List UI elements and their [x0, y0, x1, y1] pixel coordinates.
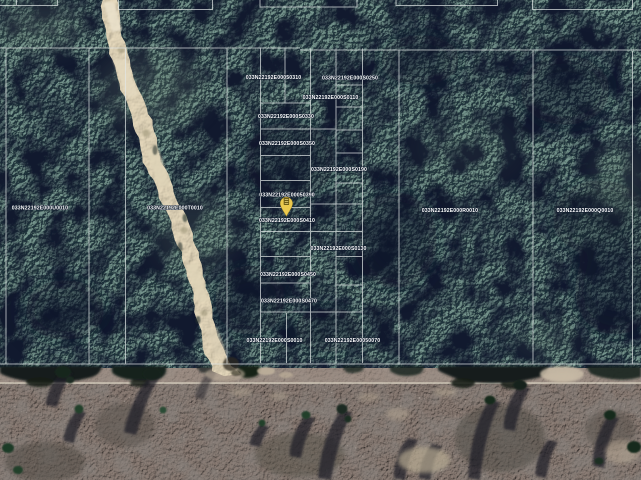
svg-text:033N22192E00050070: 033N22192E00050070	[325, 338, 381, 344]
svg-text:033N22192E000S0470: 033N22192E000S0470	[261, 299, 317, 305]
svg-text:033N22192E000S0110: 033N22192E000S0110	[303, 95, 359, 101]
svg-text:033N22192E000S0130: 033N22192E000S0130	[310, 246, 366, 252]
svg-text:033N22192E000S0250: 033N22192E000S0250	[322, 76, 378, 82]
svg-text:033N22192E000Q0010: 033N22192E000Q0010	[557, 208, 614, 214]
svg-text:033N22192E000S0330: 033N22192E000S0330	[258, 114, 314, 120]
svg-text:033N22192E000S0410: 033N22192E000S0410	[259, 218, 315, 224]
svg-text:033N22192E000S0350: 033N22192E000S0350	[259, 141, 315, 147]
svg-text:033N22192E000U0010: 033N22192E000U0010	[12, 206, 68, 212]
svg-text:033N22192E000S0190: 033N22192E000S0190	[311, 167, 367, 173]
svg-text:033N22192E000T0010: 033N22192E000T0010	[147, 206, 203, 212]
svg-text:033N22192E000S0450: 033N22192E000S0450	[260, 272, 316, 278]
svg-text:033N22192E00050310: 033N22192E00050310	[246, 75, 302, 81]
svg-text:033N22192E000R0010: 033N22192E000R0010	[422, 208, 478, 214]
svg-text:033N22192E000S0010: 033N22192E000S0010	[246, 338, 302, 344]
